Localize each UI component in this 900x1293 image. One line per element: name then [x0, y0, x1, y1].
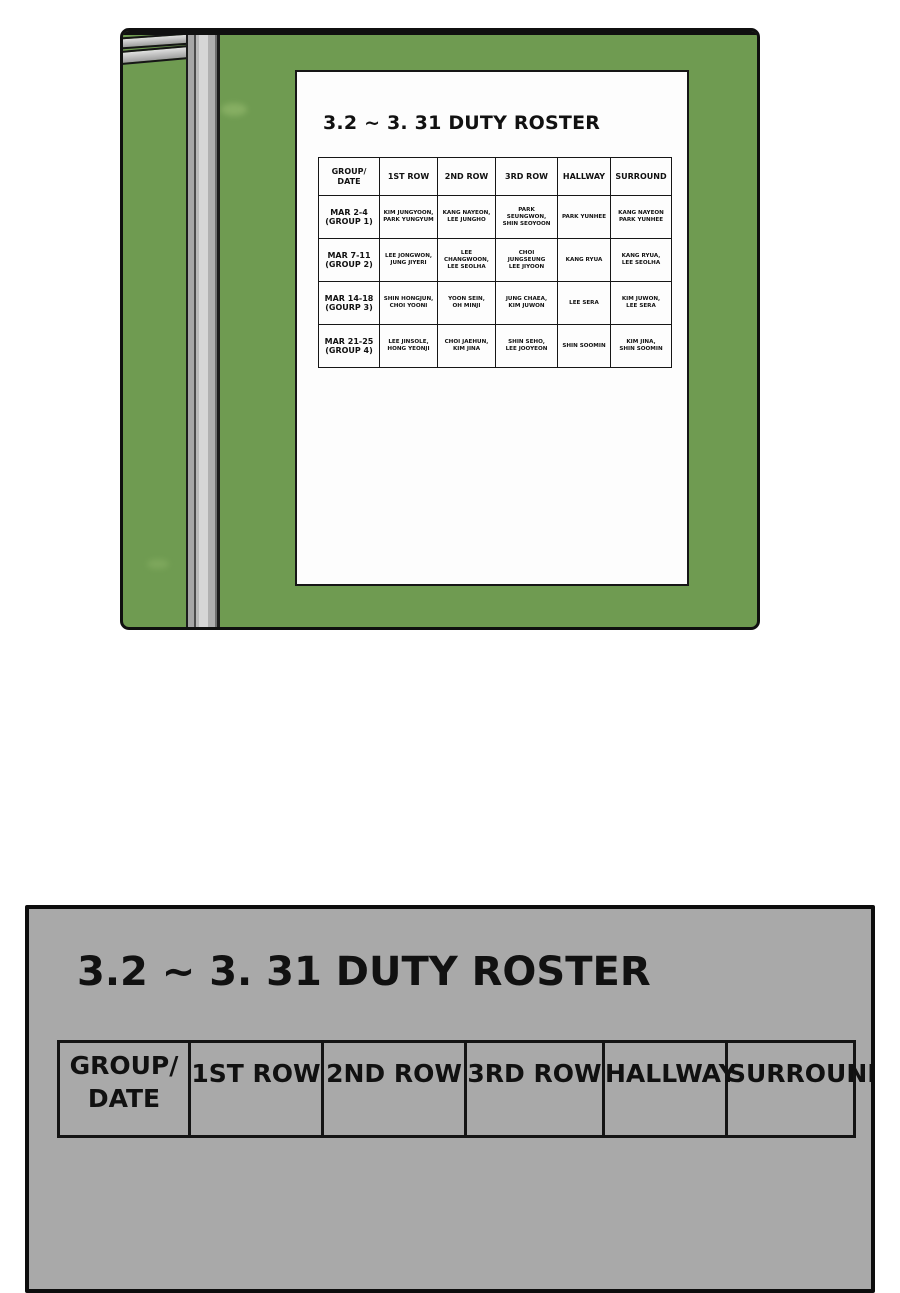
- board-highlight: [147, 559, 169, 569]
- header-hallway: HALLWAY: [558, 158, 611, 196]
- roster-row-group4: MAR 21-25 (GROUP 4) LEE JINSOLE, HONG YE…: [319, 325, 672, 368]
- roster-cell: SHIN SEHO, LEE JOOYEON: [496, 325, 558, 368]
- zoom-panel: 3.2 ~ 3. 31 DUTY ROSTER GROUP/ DATE 1ST …: [25, 905, 875, 1293]
- roster-cell: LEE CHANGWOON, LEE SEOLHA: [438, 239, 496, 282]
- header-1st-row: 1ST ROW: [380, 158, 438, 196]
- roster-header-row: GROUP/ DATE 1ST ROW 2ND ROW 3RD ROW HALL…: [319, 158, 672, 196]
- roster-cell: LEE SERA: [558, 282, 611, 325]
- zoom-header-1st-row: 1ST ROW: [190, 1042, 323, 1137]
- roster-cell: CHOI JAEHUN, KIM JINA: [438, 325, 496, 368]
- board-highlight: [221, 103, 247, 116]
- roster-row-group3: MAR 14-18 (GOURP 3) SHIN HONGJUN, CHOI Y…: [319, 282, 672, 325]
- roster-cell: KIM JUWON, LEE SERA: [611, 282, 672, 325]
- roster-table: GROUP/ DATE 1ST ROW 2ND ROW 3RD ROW HALL…: [318, 157, 672, 368]
- roster-row-group2: MAR 7-11 (GROUP 2) LEE JONGWON, JUNG JIY…: [319, 239, 672, 282]
- roster-cell: KIM JINA, SHIN SOOMIN: [611, 325, 672, 368]
- roster-cell: PARK SEUNGWON, SHIN SEOYOON: [496, 196, 558, 239]
- roster-title: 3.2 ~ 3. 31 DUTY ROSTER: [323, 112, 600, 134]
- roster-cell: KANG RYUA, LEE SEOLHA: [611, 239, 672, 282]
- roster-cell: KANG NAYEON, LEE JUNGHO: [438, 196, 496, 239]
- header-2nd-row: 2ND ROW: [438, 158, 496, 196]
- comic-page: { "board_panel": { "paper": { "title": "…: [0, 0, 900, 1080]
- row-label: MAR 21-25 (GROUP 4): [319, 325, 380, 368]
- row-label: MAR 2-4 (GROUP 1): [319, 196, 380, 239]
- zoom-header-surround: SURROUND: [727, 1042, 855, 1137]
- roster-cell: LEE JONGWON, JUNG JIYERI: [380, 239, 438, 282]
- board-top-edge: [123, 31, 757, 35]
- roster-cell: KIM JUNGYOON, PARK YUNGYUM: [380, 196, 438, 239]
- roster-cell: KANG NAYEON PARK YUNHEE: [611, 196, 672, 239]
- zoom-roster-table: GROUP/ DATE 1ST ROW 2ND ROW 3RD ROW HALL…: [57, 1040, 856, 1138]
- header-3rd-row: 3RD ROW: [496, 158, 558, 196]
- roster-cell: YOON SEIN, OH MINJI: [438, 282, 496, 325]
- roster-cell: PARK YUNHEE: [558, 196, 611, 239]
- zoom-header-2nd-row: 2ND ROW: [323, 1042, 466, 1137]
- zoom-header-row: GROUP/ DATE 1ST ROW 2ND ROW 3RD ROW HALL…: [59, 1042, 855, 1137]
- roster-cell: LEE JINSOLE, HONG YEONJI: [380, 325, 438, 368]
- roster-row-group1: MAR 2-4 (GROUP 1) KIM JUNGYOON, PARK YUN…: [319, 196, 672, 239]
- roster-paper: 3.2 ~ 3. 31 DUTY ROSTER GROUP/ DATE 1ST …: [295, 70, 689, 586]
- header-group-date: GROUP/ DATE: [319, 158, 380, 196]
- row-label: MAR 7-11 (GROUP 2): [319, 239, 380, 282]
- zoom-roster-title: 3.2 ~ 3. 31 DUTY ROSTER: [77, 949, 651, 995]
- roster-cell: KANG RYUA: [558, 239, 611, 282]
- board-panel: 3.2 ~ 3. 31 DUTY ROSTER GROUP/ DATE 1ST …: [120, 28, 760, 630]
- zoom-header-group-date: GROUP/ DATE: [59, 1042, 190, 1137]
- roster-cell: SHIN HONGJUN, CHOI YOONI: [380, 282, 438, 325]
- roster-cell: CHOI JUNGSEUNG LEE JIYOON: [496, 239, 558, 282]
- header-surround: SURROUND: [611, 158, 672, 196]
- row-label: MAR 14-18 (GOURP 3): [319, 282, 380, 325]
- roster-cell: JUNG CHAEA, KIM JUWON: [496, 282, 558, 325]
- zoom-header-hallway: HALLWAY: [604, 1042, 727, 1137]
- roster-cell: SHIN SOOMIN: [558, 325, 611, 368]
- zoom-header-3rd-row: 3RD ROW: [466, 1042, 604, 1137]
- board-frame-strip: [186, 31, 220, 627]
